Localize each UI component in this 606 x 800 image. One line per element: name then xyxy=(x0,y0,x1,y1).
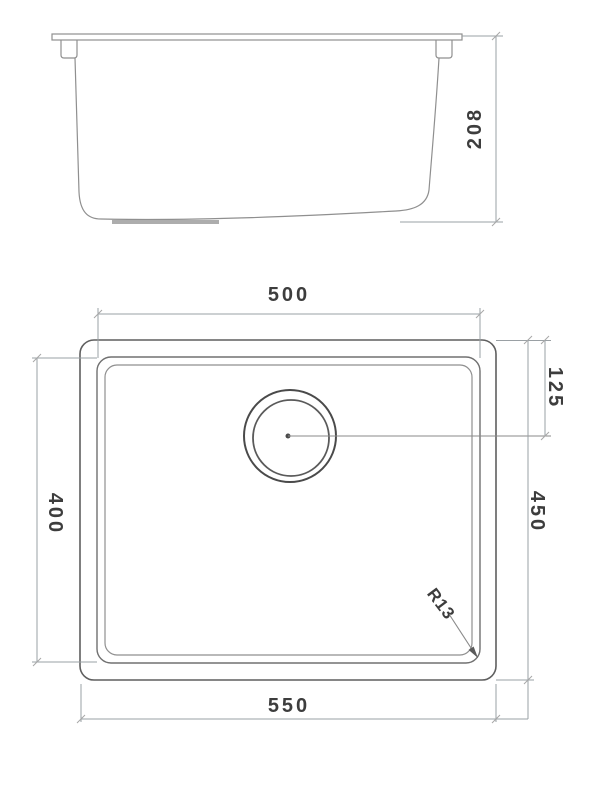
dimension-label-bowl-width: 500 xyxy=(268,284,310,306)
mounting-clip-right xyxy=(436,40,452,58)
mounting-clip-left xyxy=(61,40,77,58)
dimension-label-overall-length: 450 xyxy=(526,491,548,533)
dim-overall-length-450: 450 xyxy=(496,336,551,719)
radius-leader-arrowhead xyxy=(469,647,478,659)
dimension-label-corner-radius: R13 xyxy=(423,585,459,624)
dim-overall-width-550: 550 xyxy=(77,684,528,723)
dim-bowl-length-400: 400 xyxy=(32,354,97,666)
dimension-label-height: 208 xyxy=(464,107,486,149)
sink-technical-drawing: 208 xyxy=(0,0,606,800)
technical-drawing-page: 208 xyxy=(0,0,606,800)
plan-bowl-rim-line xyxy=(97,357,480,663)
dim-corner-radius-r13: R13 xyxy=(423,585,478,658)
dim-height-208: 208 xyxy=(400,32,503,226)
dim-bowl-width-500: 500 xyxy=(94,284,484,358)
plan-view: 500 400 450 xyxy=(32,284,566,723)
dimension-label-overall-width: 550 xyxy=(268,695,310,717)
dim-drain-offset-125: 125 xyxy=(541,336,566,440)
side-view-rim xyxy=(52,34,462,40)
dimension-label-drain-offset: 125 xyxy=(544,367,566,409)
drain-inner-circle xyxy=(253,400,329,476)
radius-leader-line xyxy=(449,614,473,651)
plan-bowl-bottom-line xyxy=(105,365,472,655)
side-view: 208 xyxy=(52,32,503,226)
side-view-body-outline xyxy=(75,58,439,219)
dimension-label-bowl-length: 400 xyxy=(44,493,66,535)
